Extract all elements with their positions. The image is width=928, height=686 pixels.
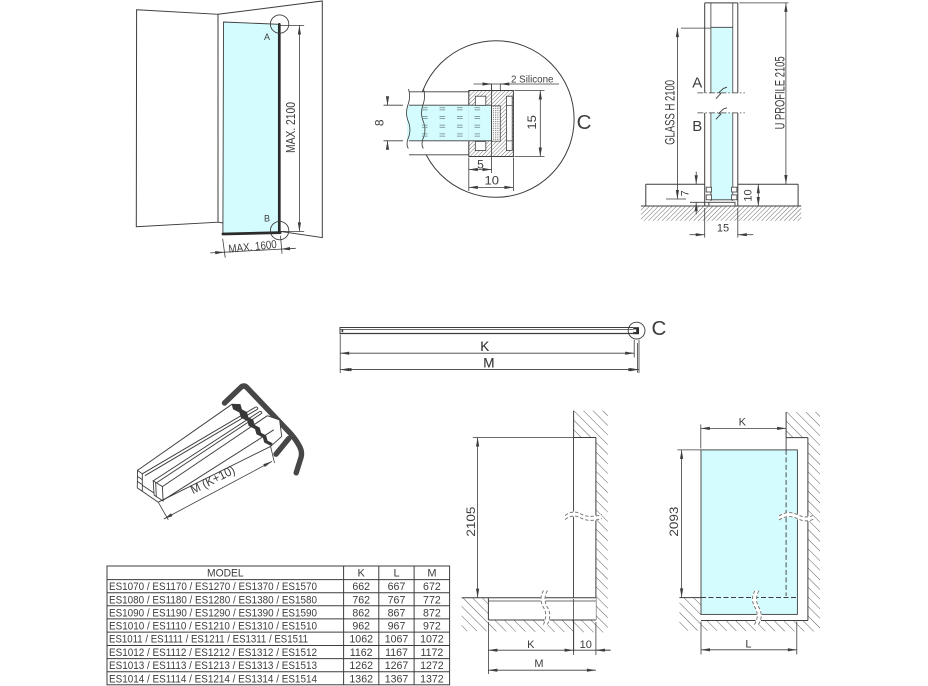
svg-text:B: B xyxy=(264,213,270,223)
svg-text:1272: 1272 xyxy=(420,660,444,672)
svg-text:15: 15 xyxy=(525,115,539,130)
svg-text:862: 862 xyxy=(352,607,370,619)
svg-text:ES1090 / ES1190 / ES1290 / ES1: ES1090 / ES1190 / ES1290 / ES1390 / ES15… xyxy=(109,607,317,619)
svg-text:10: 10 xyxy=(580,639,592,651)
svg-text:B: B xyxy=(692,118,702,135)
svg-text:GLASS H 2100: GLASS H 2100 xyxy=(663,80,678,145)
svg-text:M: M xyxy=(427,568,436,580)
svg-text:A: A xyxy=(692,74,702,91)
svg-text:2 Silicone: 2 Silicone xyxy=(511,73,554,85)
svg-text:872: 872 xyxy=(423,607,441,619)
svg-text:L: L xyxy=(393,568,399,580)
svg-text:MODEL: MODEL xyxy=(207,568,244,580)
svg-text:1367: 1367 xyxy=(385,673,409,685)
svg-text:667: 667 xyxy=(388,581,406,593)
svg-text:ES1010 / ES1110 / ES1210 / ES1: ES1010 / ES1110 / ES1210 / ES1310 / ES15… xyxy=(109,621,317,633)
svg-text:772: 772 xyxy=(423,594,441,606)
svg-text:1062: 1062 xyxy=(349,634,373,646)
svg-text:ES1014 / ES1114 / ES1214 / ES1: ES1014 / ES1114 / ES1214 / ES1314 / ES15… xyxy=(109,673,317,685)
svg-text:1167: 1167 xyxy=(385,647,408,659)
svg-text:K: K xyxy=(480,339,489,354)
svg-text:2093: 2093 xyxy=(667,506,681,536)
svg-text:1072: 1072 xyxy=(420,634,444,646)
svg-text:7: 7 xyxy=(680,190,692,196)
svg-text:L: L xyxy=(745,639,751,651)
svg-text:962: 962 xyxy=(352,621,370,633)
svg-text:M: M xyxy=(534,658,543,670)
svg-text:MAX. 2100: MAX. 2100 xyxy=(284,102,298,153)
svg-text:MAX. 1600: MAX. 1600 xyxy=(228,239,277,256)
svg-text:K: K xyxy=(527,639,535,651)
svg-text:662: 662 xyxy=(352,581,370,593)
svg-text:ES1012 / ES1112 / ES1212 / ES1: ES1012 / ES1112 / ES1212 / ES1312 / ES15… xyxy=(109,647,317,659)
svg-text:M: M xyxy=(483,355,494,370)
svg-text:1262: 1262 xyxy=(349,660,373,672)
svg-text:762: 762 xyxy=(352,594,370,606)
svg-text:8: 8 xyxy=(373,119,387,126)
svg-text:1267: 1267 xyxy=(385,660,409,672)
svg-text:A: A xyxy=(264,32,270,42)
svg-text:672: 672 xyxy=(423,581,441,593)
svg-text:767: 767 xyxy=(388,594,406,606)
svg-text:U PROFILE 2105: U PROFILE 2105 xyxy=(772,56,787,129)
svg-text:K: K xyxy=(739,417,747,429)
svg-text:C: C xyxy=(651,317,666,340)
svg-text:1362: 1362 xyxy=(349,673,373,685)
svg-text:1162: 1162 xyxy=(350,647,373,659)
svg-text:ES1013 / ES1113 / ES1213 / ES1: ES1013 / ES1113 / ES1213 / ES1313 / ES15… xyxy=(109,660,317,672)
svg-text:ES1080 / ES1180 / ES1280 / ES1: ES1080 / ES1180 / ES1280 / ES1380 / ES15… xyxy=(109,594,317,606)
svg-text:C: C xyxy=(577,111,592,134)
svg-text:1172: 1172 xyxy=(421,647,444,659)
svg-text:5: 5 xyxy=(477,157,484,171)
svg-text:ES1070 / ES1170 / ES1270 / ES1: ES1070 / ES1170 / ES1270 / ES1370 / ES15… xyxy=(109,581,317,593)
svg-text:867: 867 xyxy=(388,607,406,619)
svg-text:K: K xyxy=(358,568,366,580)
svg-text:15: 15 xyxy=(717,223,729,235)
svg-text:1372: 1372 xyxy=(420,673,444,685)
svg-text:967: 967 xyxy=(388,621,406,633)
svg-text:972: 972 xyxy=(423,621,441,633)
svg-text:10: 10 xyxy=(742,189,754,201)
svg-text:2105: 2105 xyxy=(464,506,478,536)
svg-text:1067: 1067 xyxy=(385,634,409,646)
svg-text:ES1011 / ES1111 / ES1211 / ES1: ES1011 / ES1111 / ES1211 / ES1311 / ES15… xyxy=(109,634,308,646)
svg-text:10: 10 xyxy=(485,174,500,188)
